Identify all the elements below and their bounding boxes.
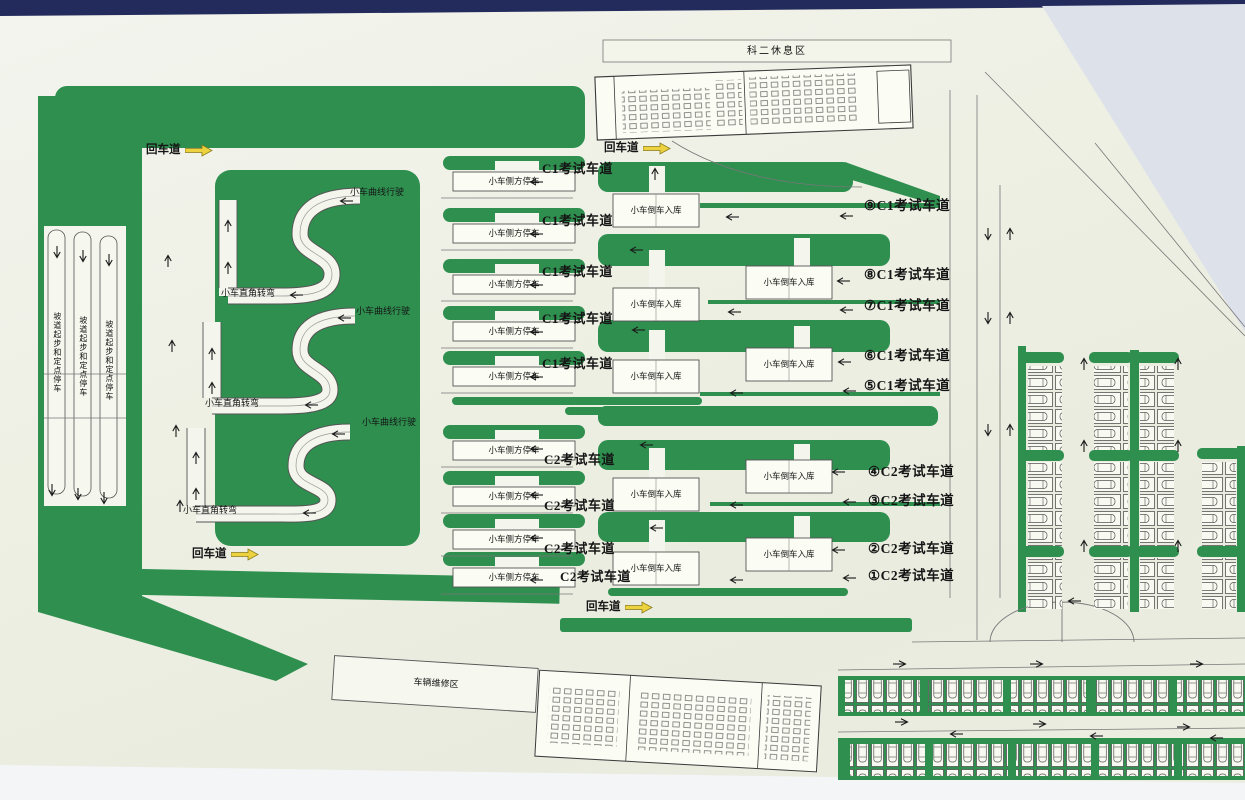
numbered-lane-label: ⑧C1考试车道 [864, 268, 950, 283]
numbered-lane-label: ⑤C1考试车道 [864, 379, 950, 394]
hill-start-label: 坡道起步和定点停车 [74, 266, 91, 446]
right-angle-turn-label: 小车直角转弯 [183, 506, 237, 516]
reverse-garage-label: 小车倒车入库 [613, 478, 699, 511]
numbered-lane-label: ⑥C1考试车道 [864, 349, 950, 364]
reverse-garage-label: 小车倒车入库 [746, 460, 832, 493]
reverse-garage-label: 小车倒车入库 [746, 538, 832, 571]
return-lane-text: 回车道 [192, 548, 227, 561]
return-lane-text: 回车道 [604, 142, 639, 155]
numbered-lane-label: ①C2考试车道 [868, 569, 954, 584]
c1-lane-label: C1考试车道 [542, 265, 613, 279]
numbered-lane-label: ⑦C1考试车道 [864, 299, 950, 314]
numbered-lane-label: ③C2考试车道 [868, 494, 954, 509]
curve-driving-label: 小车曲线行驶 [350, 188, 404, 198]
course-map-board: 回车道 回车道 回车道 回车道 科二休息区 车辆维修区 小车曲线行驶 小车曲线行… [0, 0, 1245, 800]
reverse-garage-label: 小车倒车入库 [746, 266, 832, 299]
return-lane-arrow-icon [625, 601, 653, 614]
numbered-lane-label: ④C2考试车道 [868, 465, 954, 480]
hill-start-label: 坡道起步和定点停车 [100, 270, 117, 450]
c1-lane-label: C1考试车道 [542, 312, 613, 326]
c1-lane-label: C1考试车道 [542, 162, 613, 176]
rest-area-building [595, 65, 913, 140]
right-angle-turn-label: 小车直角转弯 [221, 289, 275, 299]
exam-hall-building [535, 670, 821, 772]
bottom-parking-rows [845, 680, 1245, 776]
curve-driving-label: 小车曲线行驶 [356, 307, 410, 317]
curve-driving-label: 小车曲线行驶 [362, 418, 416, 428]
return-lane-label: 回车道 [604, 142, 671, 155]
reverse-garage-label: 小车倒车入库 [613, 360, 699, 393]
site-plan-graphics [0, 0, 1245, 800]
reverse-garage-label: 小车倒车入库 [613, 288, 699, 321]
photo-corner-background [1042, 4, 1245, 332]
numbered-lane-label: ⑨C1考试车道 [864, 199, 950, 214]
reverse-garage-label: 小车倒车入库 [746, 348, 832, 381]
return-lane-arrow-icon [185, 144, 213, 157]
return-lane-text: 回车道 [146, 144, 181, 157]
c1-lane-label: C1考试车道 [542, 214, 613, 228]
return-lane-label: 回车道 [586, 601, 653, 614]
return-lane-label: 回车道 [146, 144, 213, 157]
return-lane-arrow-icon [231, 548, 259, 561]
rest-area-label: 科二休息区 [603, 41, 951, 61]
c2-lane-label: C2考试车道 [544, 542, 615, 556]
return-lane-text: 回车道 [586, 601, 621, 614]
reverse-garage-label: 小车倒车入库 [613, 194, 699, 227]
side-parking-label: 小车侧方停车 [453, 569, 575, 586]
c2-lane-label: C2考试车道 [544, 453, 615, 467]
numbered-lane-label: ②C2考试车道 [868, 542, 954, 557]
hill-start-label: 坡道起步和定点停车 [48, 262, 65, 442]
return-lane-arrow-icon [643, 142, 671, 155]
c2-lane-label: C2考试车道 [544, 499, 615, 513]
c2-lane-label: C2考试车道 [560, 570, 631, 584]
return-lane-label: 回车道 [192, 548, 259, 561]
right-angle-turn-label: 小车直角转弯 [205, 399, 259, 409]
c1-lane-label: C1考试车道 [542, 357, 613, 371]
